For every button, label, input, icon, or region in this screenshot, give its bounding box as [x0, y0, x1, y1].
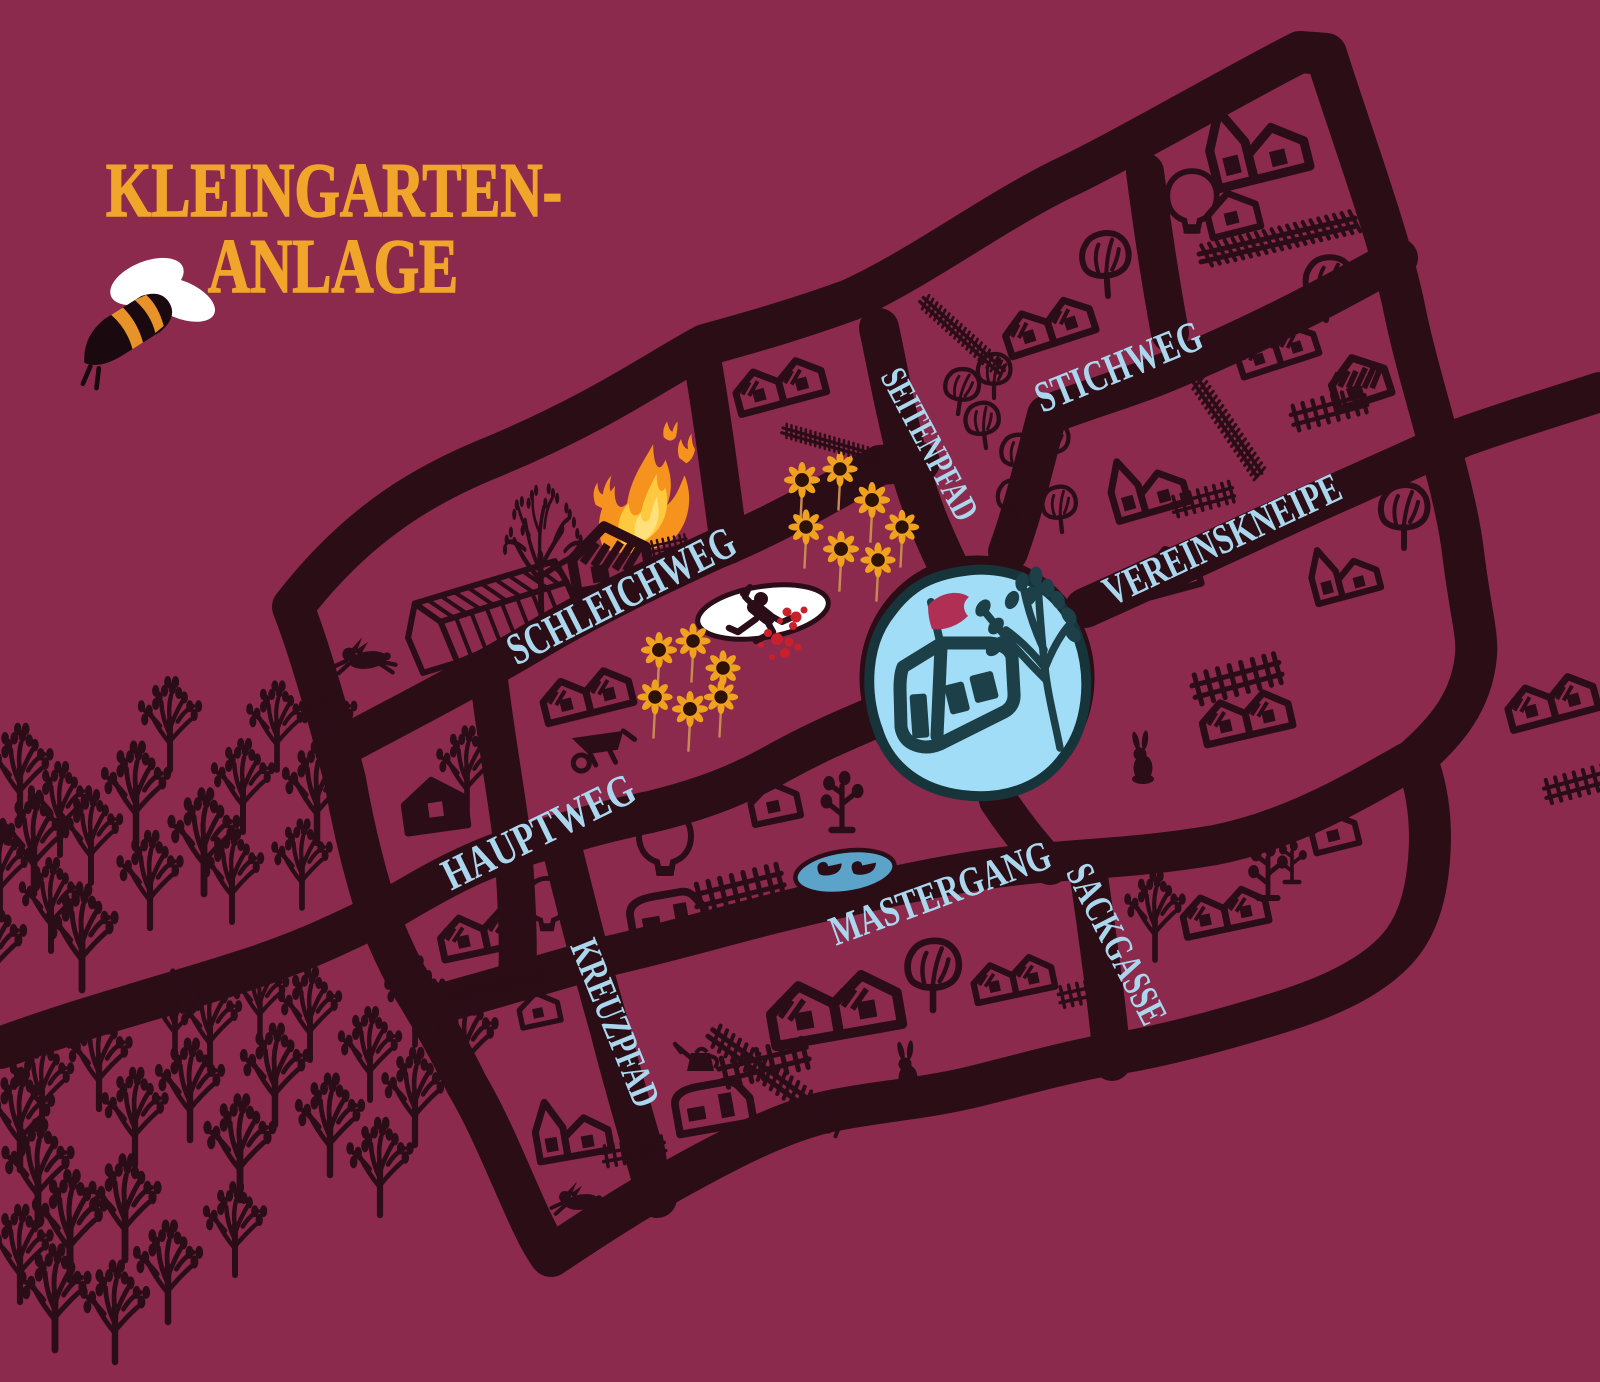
- svg-text:KLEINGARTEN-: KLEINGARTEN-: [106, 147, 562, 233]
- svg-text:ANLAGE: ANLAGE: [208, 223, 458, 309]
